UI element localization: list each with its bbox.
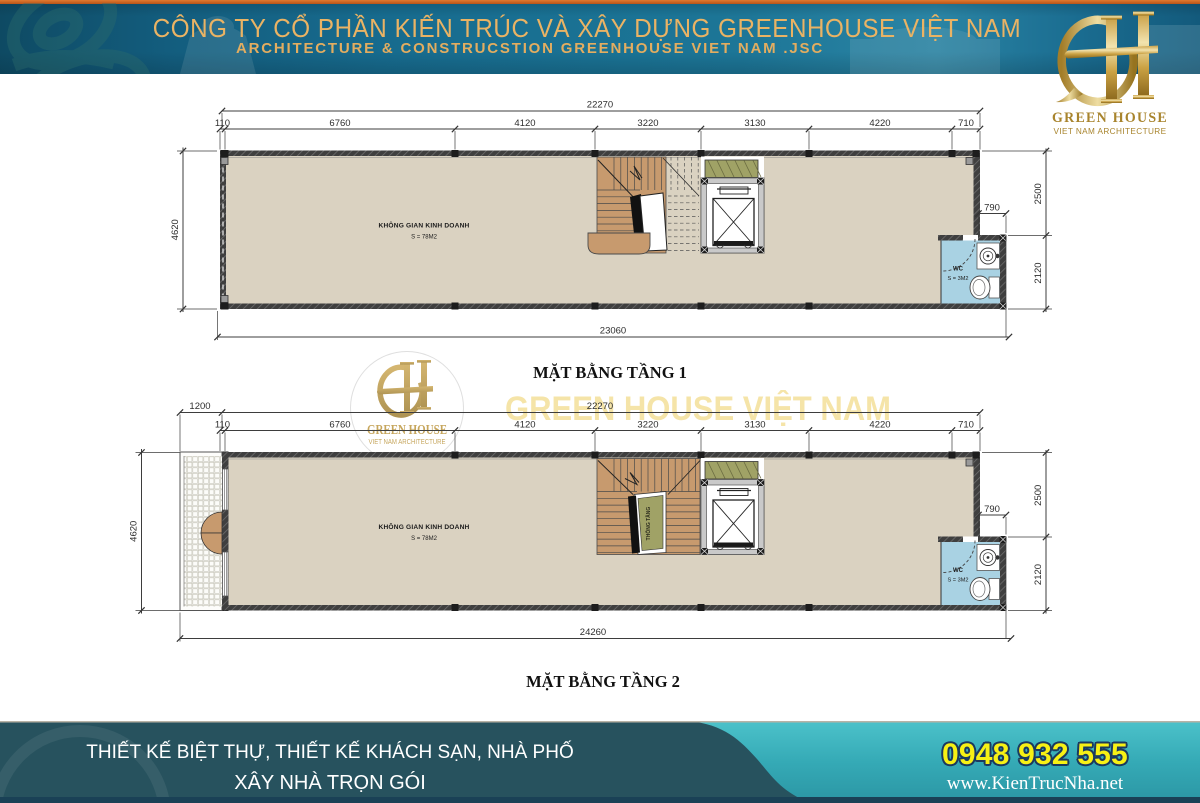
svg-text:2120: 2120: [1033, 564, 1044, 585]
svg-text:6760: 6760: [329, 420, 350, 431]
svg-text:4220: 4220: [869, 420, 890, 431]
svg-text:4120: 4120: [514, 118, 535, 129]
svg-text:S = 78M2: S = 78M2: [411, 536, 438, 542]
svg-text:GREEN HOUSE: GREEN HOUSE: [1052, 110, 1168, 126]
svg-text:790: 790: [984, 203, 1000, 214]
svg-text:KHÔNG GIAN KINH DOANH: KHÔNG GIAN KINH DOANH: [378, 221, 469, 230]
svg-text:2500: 2500: [1033, 485, 1044, 506]
svg-text:6760: 6760: [329, 118, 350, 129]
svg-text:MẶT BẰNG TẦNG 2: MẶT BẰNG TẦNG 2: [526, 672, 680, 691]
svg-text:4620: 4620: [129, 521, 140, 542]
svg-text:S = 3M2: S = 3M2: [948, 578, 969, 584]
svg-text:4220: 4220: [869, 118, 890, 129]
svg-text:KHÔNG GIAN KINH DOANH: KHÔNG GIAN KINH DOANH: [378, 522, 469, 531]
svg-text:24260: 24260: [580, 627, 606, 638]
svg-text:2500: 2500: [1033, 183, 1044, 204]
svg-text:3220: 3220: [637, 118, 658, 129]
svg-text:S = 3M2: S = 3M2: [948, 276, 969, 282]
svg-text:THÔNG TẦNG: THÔNG TẦNG: [644, 507, 652, 541]
svg-text:3130: 3130: [744, 420, 765, 431]
svg-text:790: 790: [984, 504, 1000, 515]
svg-text:710: 710: [958, 420, 974, 431]
svg-text:23060: 23060: [600, 326, 626, 337]
svg-text:VIET NAM ARCHITECTURE: VIET NAM ARCHITECTURE: [369, 439, 446, 446]
svg-text:WC: WC: [953, 568, 964, 574]
svg-text:4120: 4120: [514, 420, 535, 431]
svg-text:22270: 22270: [587, 401, 613, 412]
svg-text:WC: WC: [953, 267, 964, 273]
svg-text:4620: 4620: [170, 219, 181, 240]
svg-text:MẶT BẰNG TẦNG 1: MẶT BẰNG TẦNG 1: [533, 363, 687, 382]
svg-text:110: 110: [215, 118, 230, 129]
svg-text:S = 78M2: S = 78M2: [411, 235, 438, 241]
svg-text:22270: 22270: [587, 100, 613, 111]
svg-text:3220: 3220: [637, 420, 658, 431]
svg-text:VIET NAM ARCHITECTURE: VIET NAM ARCHITECTURE: [1054, 126, 1167, 136]
svg-text:GREEN HOUSE VIỆT NAM: GREEN HOUSE VIỆT NAM: [505, 390, 891, 428]
svg-text:GREEN HOUSE: GREEN HOUSE: [367, 422, 447, 437]
svg-text:110: 110: [215, 420, 230, 431]
svg-text:1200: 1200: [189, 401, 210, 412]
svg-text:710: 710: [958, 118, 974, 129]
svg-text:2120: 2120: [1033, 262, 1044, 283]
svg-text:3130: 3130: [744, 118, 765, 129]
